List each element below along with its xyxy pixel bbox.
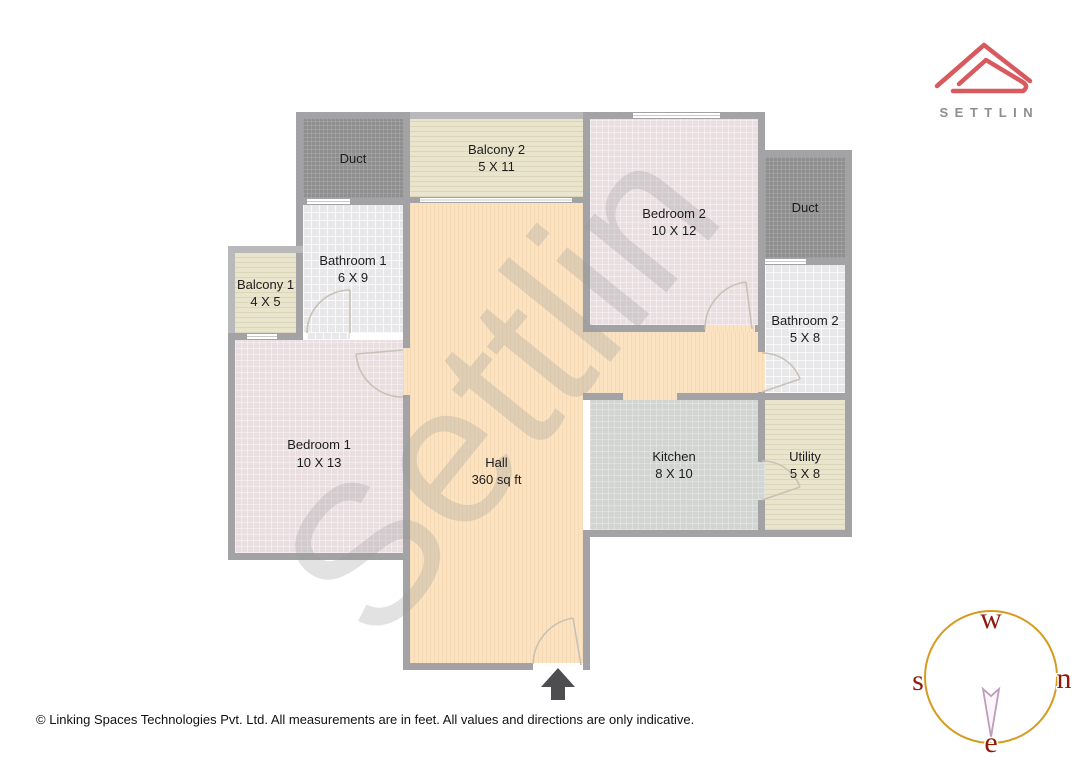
wall <box>228 340 235 560</box>
arrow-head <box>541 668 575 687</box>
room-duct-1: Duct <box>303 119 403 198</box>
room-bathroom-1: Bathroom 1 6 X 9 <box>303 205 403 333</box>
room-name: Bedroom 2 <box>642 205 706 222</box>
threshold <box>623 393 677 400</box>
balcony-railing <box>403 112 590 119</box>
balcony-railing <box>228 246 303 253</box>
entrance-arrow-icon <box>541 668 575 700</box>
room-name: Duct <box>792 199 819 216</box>
window <box>307 199 350 204</box>
settlin-logo: SETTLIN <box>933 36 1033 120</box>
room-bedroom-1: Bedroom 1 10 X 13 <box>235 340 403 553</box>
room-bathroom-2: Bathroom 2 5 X 8 <box>765 265 845 393</box>
room-balcony-1: Balcony 1 4 X 5 <box>235 253 296 333</box>
window <box>765 259 806 264</box>
threshold <box>758 462 765 500</box>
room-dims: 5 X 11 <box>468 158 525 175</box>
room-name: Balcony 2 <box>468 141 525 158</box>
room-dims: 4 X 5 <box>237 293 294 310</box>
room-name: Balcony 1 <box>237 276 294 293</box>
settlin-roof-icon <box>933 36 1033 98</box>
room-corridor <box>583 332 758 400</box>
room-label: Bedroom 1 10 X 13 <box>287 422 351 470</box>
room-utility: Utility 5 X 8 <box>765 400 845 530</box>
threshold <box>705 325 755 332</box>
wall <box>296 112 303 340</box>
wall <box>403 395 410 560</box>
wall <box>583 530 852 537</box>
room-hall: Hall 360 sq ft <box>410 197 583 663</box>
threshold <box>307 333 350 340</box>
wall <box>758 150 852 157</box>
room-bedroom-2: Bedroom 2 10 X 12 <box>590 119 758 325</box>
room-name: Kitchen <box>652 448 695 465</box>
room-dims: 10 X 13 <box>287 454 351 471</box>
room-balcony-2: Balcony 2 5 X 11 <box>410 119 583 197</box>
room-dims: 360 sq ft <box>472 471 522 488</box>
wall <box>758 112 765 352</box>
room-name: Bedroom 1 <box>287 436 351 453</box>
room-kitchen: Kitchen 8 X 10 <box>590 400 758 530</box>
disclaimer-text: © Linking Spaces Technologies Pvt. Ltd. … <box>36 712 694 727</box>
room-name: Bathroom 1 <box>319 252 386 269</box>
room-dims: 10 X 12 <box>642 222 706 239</box>
room-label: Balcony 2 5 X 11 <box>468 141 525 175</box>
wall <box>845 150 852 537</box>
arrow-stem <box>551 686 565 700</box>
window <box>420 198 572 202</box>
room-label: Duct <box>340 150 367 167</box>
compass-south-label: s <box>912 664 924 697</box>
room-label: Utility 5 X 8 <box>789 448 821 482</box>
wall <box>403 553 410 670</box>
compass-east-label: e <box>984 726 997 759</box>
compass-rose: w n s e <box>896 580 1080 764</box>
wall <box>583 112 590 332</box>
wall <box>583 325 705 332</box>
wall <box>296 112 410 119</box>
wall <box>228 553 410 560</box>
room-dims: 5 X 8 <box>789 465 821 482</box>
room-name: Bathroom 2 <box>771 312 838 329</box>
wall <box>755 325 765 332</box>
compass-west-label: w <box>980 602 1002 635</box>
room-dims: 8 X 10 <box>652 465 695 482</box>
wall <box>677 393 852 400</box>
room-dims: 5 X 8 <box>771 329 838 346</box>
wall <box>403 663 533 670</box>
wall <box>583 535 590 670</box>
window <box>633 113 720 118</box>
brand-name: SETTLIN <box>933 105 1033 120</box>
room-label: Bedroom 2 10 X 12 <box>642 205 706 239</box>
threshold <box>758 352 765 392</box>
room-label: Bathroom 1 6 X 9 <box>319 252 386 286</box>
balcony-railing <box>228 246 235 340</box>
room-label: Kitchen 8 X 10 <box>652 448 695 482</box>
wall <box>758 392 765 462</box>
wall <box>583 393 623 400</box>
room-name: Utility <box>789 448 821 465</box>
compass-north-label: n <box>1057 662 1072 695</box>
room-label: Balcony 1 4 X 5 <box>237 276 294 310</box>
room-name: Duct <box>340 150 367 167</box>
room-duct-2: Duct <box>765 157 845 258</box>
floorplan-page: Duct Balcony 2 5 X 11 Bedroom 2 10 X 12 … <box>0 0 1080 764</box>
wall <box>758 500 765 530</box>
wall <box>403 112 410 348</box>
threshold <box>403 348 410 395</box>
room-dims: 6 X 9 <box>319 269 386 286</box>
room-label: Duct <box>792 199 819 216</box>
window <box>247 334 277 339</box>
room-label: Bathroom 2 5 X 8 <box>771 312 838 346</box>
room-label: Hall 360 sq ft <box>472 372 522 488</box>
room-name: Hall <box>472 454 522 471</box>
